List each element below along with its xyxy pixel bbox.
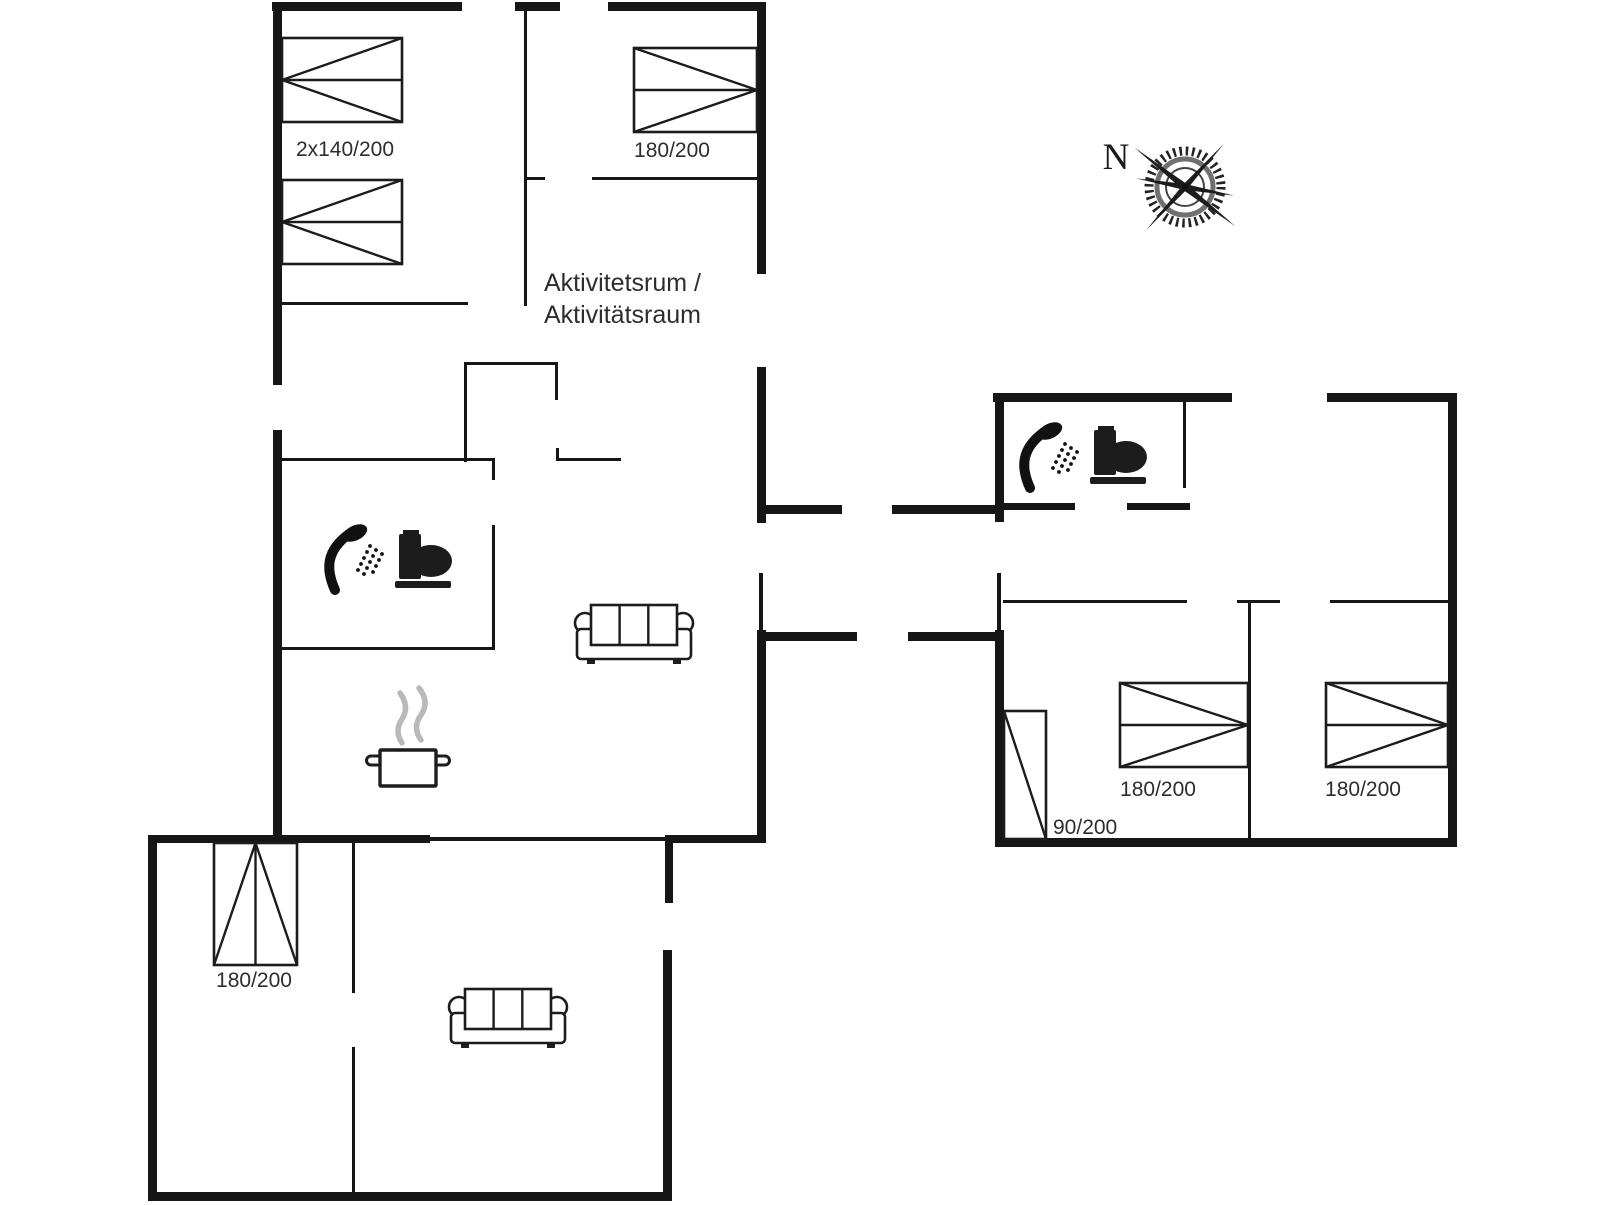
hall2-wall-b xyxy=(1237,600,1280,603)
sofa-icon xyxy=(575,605,693,664)
hall2-wall-c xyxy=(1330,600,1448,603)
wall-partition-bedrooms xyxy=(524,8,527,306)
activity-room-label-line1: Aktivitetsrum / xyxy=(544,269,701,297)
wall-bath1-north xyxy=(281,458,495,461)
wing2-east xyxy=(1448,393,1457,847)
wing2-top-2 xyxy=(1327,393,1457,402)
corridor-top-west xyxy=(766,505,842,514)
wing-partition-b xyxy=(352,1047,355,1192)
floor-plan-svg: N 2x140/200 180/200 Aktivitetsrum / Akti… xyxy=(0,0,1606,1205)
bed-label-right-room2: 180/200 xyxy=(1325,778,1401,801)
toilet-icon xyxy=(1090,426,1147,484)
wall-closet-east-stub xyxy=(555,362,558,400)
bed-bottom-wing xyxy=(214,843,297,965)
walls-corridor xyxy=(766,505,1003,641)
wall-east-thin xyxy=(759,573,763,632)
bed-right-room2 xyxy=(1326,683,1448,767)
wall-closet-north xyxy=(464,362,558,365)
cooking-pot-icon xyxy=(367,688,450,786)
compass-rose-icon xyxy=(1132,142,1237,232)
shower-icon xyxy=(1024,419,1079,488)
bed-label-bottom-wing: 180/200 xyxy=(216,969,292,992)
bath2-east xyxy=(1183,397,1186,488)
wall-bath1-east xyxy=(492,525,495,650)
wing2-west-lower xyxy=(995,630,1004,847)
wing2-west-upper xyxy=(995,393,1004,522)
wall-top-1 xyxy=(272,2,462,11)
wall-bedroom1-south xyxy=(277,302,468,305)
wall-closet-west xyxy=(464,362,467,462)
bath2-bottom-left xyxy=(1003,503,1075,510)
toilet-icon xyxy=(395,530,452,588)
bed-top-middle xyxy=(634,48,757,132)
wing-south-east-lower xyxy=(663,950,672,1201)
bed-label-top-middle: 180/200 xyxy=(634,139,710,162)
wall-bath1-east-stub xyxy=(492,458,495,480)
bed-right-room1 xyxy=(1120,683,1248,767)
wing2-west-thin xyxy=(997,573,1001,632)
bed-top-left-1 xyxy=(282,38,402,122)
wall-divider-a xyxy=(527,177,545,180)
wing2-top-1 xyxy=(993,393,1232,402)
corridor-bottom-east xyxy=(908,632,1003,641)
wardrobe-icon xyxy=(1004,711,1046,839)
bath2-bottom-right xyxy=(1127,503,1190,510)
wall-top-3 xyxy=(608,2,766,11)
wall-east-lower xyxy=(757,630,766,843)
bed-top-left-2 xyxy=(282,180,402,264)
corridor-top-east xyxy=(892,505,1003,514)
shower-icon xyxy=(329,521,384,590)
wardrobe-label: 90/200 xyxy=(1053,816,1117,839)
bed-label-top-left: 2x140/200 xyxy=(296,138,394,161)
wing2-bottom xyxy=(995,838,1457,847)
wall-hall-south xyxy=(556,458,621,461)
wall-left-upper xyxy=(273,2,282,385)
hall2-wall-a xyxy=(1003,600,1187,603)
wall-top-2 xyxy=(515,2,560,11)
floor-plan-page: N 2x140/200 180/200 Aktivitetsrum / Akti… xyxy=(0,0,1606,1205)
wall-left-lower xyxy=(273,430,282,842)
corridor-bottom-west xyxy=(766,632,857,641)
sofa-icon xyxy=(449,989,567,1048)
wing-south-west xyxy=(148,835,157,1201)
wall-east-mid xyxy=(757,367,766,523)
activity-room-label-line2: Aktivitätsraum xyxy=(544,301,701,329)
wall-east-upper xyxy=(757,2,766,274)
wing-south-bottom xyxy=(148,1192,672,1201)
compass-north-label: N xyxy=(1103,137,1130,178)
bed-label-right-room1: 180/200 xyxy=(1120,778,1196,801)
wall-divider-b xyxy=(592,177,760,180)
wall-bath1-south xyxy=(281,647,495,650)
wall-main-bottom xyxy=(665,835,766,843)
wing-partition-a xyxy=(352,843,355,993)
wall-main-bottom-thin xyxy=(430,837,665,841)
wing-south-east-upper xyxy=(665,843,673,903)
